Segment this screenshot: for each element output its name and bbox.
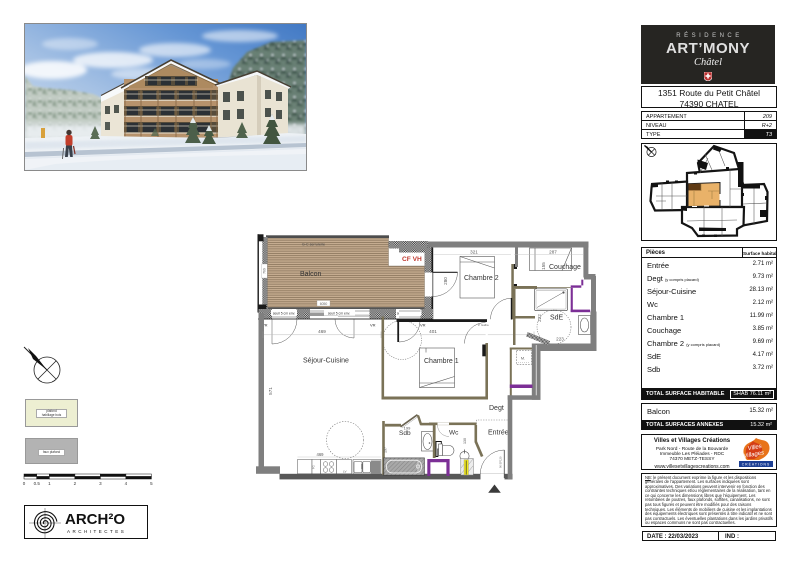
svg-text:Entrée: Entrée (488, 430, 509, 437)
svg-text:Balcon: Balcon (300, 271, 322, 278)
svg-text:Couchage: Couchage (549, 264, 581, 271)
svg-text:5: 5 (150, 481, 153, 486)
svg-text:1: 1 (48, 481, 51, 486)
svg-text:155: 155 (541, 262, 546, 270)
svg-text:223: 223 (556, 337, 564, 342)
svg-text:571: 571 (268, 387, 273, 395)
svg-text:321: 321 (470, 250, 478, 255)
svg-text:280: 280 (443, 277, 448, 285)
svg-text:G-C serrurerie: G-C serrurerie (302, 243, 325, 247)
svg-text:222: 222 (537, 314, 542, 322)
svg-text:Séjour-Cuisine: Séjour-Cuisine (303, 358, 349, 365)
svg-text:CF VH: CF VH (402, 256, 422, 263)
svg-text:Chambre 2: Chambre 2 (464, 275, 499, 282)
svg-text:CRÉATIONS: CRÉATIONS (742, 462, 771, 467)
svg-text:197: 197 (384, 447, 388, 453)
svg-text:199: 199 (404, 426, 411, 431)
svg-text:VR: VR (420, 323, 426, 328)
svg-text:2: 2 (74, 481, 77, 486)
svg-text:6050: 6050 (320, 302, 328, 306)
svg-text:seuil 5 cm env.: seuil 5 cm env. (328, 312, 350, 316)
svg-text:M.: M. (521, 357, 525, 361)
svg-text:Wc: Wc (449, 430, 459, 437)
svg-text:seuil 5 cm env.: seuil 5 cm env. (273, 312, 295, 316)
svg-text:3: 3 (99, 481, 102, 486)
svg-text:Sdb: Sdb (399, 430, 411, 437)
svg-text:469: 469 (317, 452, 325, 457)
svg-text:769: 769 (263, 268, 267, 274)
svg-text:287: 287 (549, 250, 557, 255)
svg-text:FG: FG (312, 465, 316, 469)
svg-text:130: 130 (463, 438, 467, 444)
svg-text:401: 401 (429, 329, 437, 334)
svg-text:0: 0 (23, 481, 26, 486)
svg-text:VR: VR (370, 323, 376, 328)
svg-text:Degt: Degt (489, 405, 504, 412)
svg-text:Chambre 1: Chambre 1 (424, 358, 459, 365)
svg-text:P. Galba: P. Galba (478, 323, 489, 327)
svg-text:0.5: 0.5 (34, 481, 41, 486)
svg-text:4: 4 (125, 481, 128, 486)
svg-text:SdE: SdE (550, 315, 564, 322)
svg-text:90 EP120: 90 EP120 (499, 456, 503, 468)
svg-text:LV: LV (343, 470, 346, 474)
svg-text:469: 469 (318, 329, 326, 334)
